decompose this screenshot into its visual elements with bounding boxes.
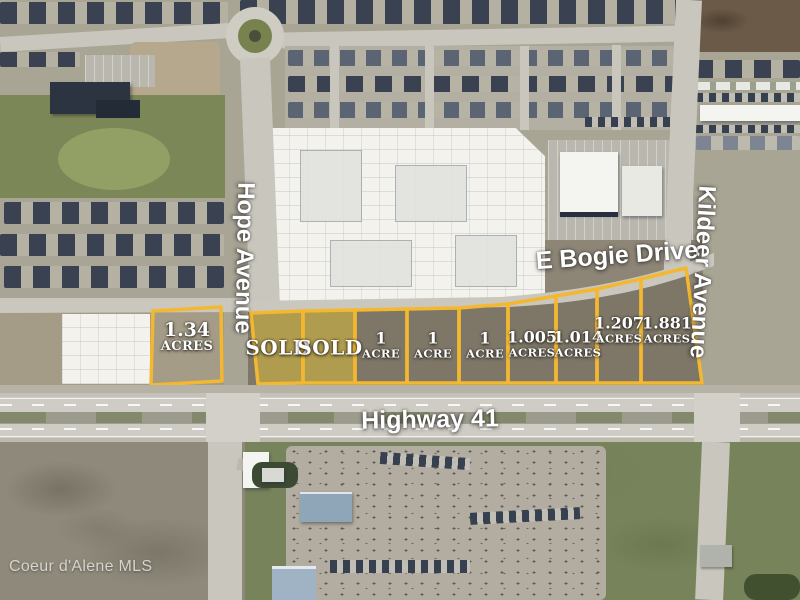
parcel-unit: ACRES [161, 340, 214, 354]
parcel-unit: ACRES [594, 332, 644, 344]
parcel-status: SOLD [297, 337, 362, 358]
hope-avenue-label: Hope Avenue [229, 182, 260, 334]
parcel-label-1acre-c: 1 ACRE [466, 330, 504, 359]
lane-line [0, 436, 800, 437]
parcel-acreage: 1.34 [161, 320, 214, 340]
trees [744, 574, 800, 600]
parcel-label-1-34: 1.34 ACRES [161, 320, 214, 354]
highway-intersection [206, 393, 260, 442]
blue-shed [300, 492, 352, 522]
parcel-unit: ACRE [414, 347, 452, 359]
parcel-unit: ACRES [553, 346, 603, 358]
highway-intersection [694, 393, 740, 442]
parcel-label-1-881: 1.881 ACRES [642, 315, 692, 344]
house-roof [262, 468, 284, 482]
aerial-parcel-map: Hope Avenue Kildeer Avenue E Bogie Drive… [0, 0, 800, 600]
parcel-label-1acre-b: 1 ACRE [414, 330, 452, 359]
farm-building [700, 545, 732, 567]
lane-line [0, 398, 800, 399]
highway-41-label: Highway 41 [361, 404, 499, 435]
parcel-acreage: 1 [362, 330, 400, 347]
parcel-label-sold-2: SOLD [297, 337, 362, 358]
parcel-unit: ACRE [466, 347, 504, 359]
mls-watermark: Coeur d'Alene MLS [9, 558, 152, 576]
parcel-label-1acre-a: 1 ACRE [362, 330, 400, 359]
parcel-acreage: 1.881 [642, 315, 692, 332]
blue-building [272, 566, 316, 600]
parcel-unit: ACRE [362, 347, 400, 359]
parcel-label-1-207: 1.207 ACRES [594, 315, 644, 344]
parcel-unit: ACRES [507, 346, 557, 358]
parcel-acreage: 1 [466, 330, 504, 347]
parcel-unit: ACRES [642, 332, 692, 344]
parcel-label-1-005: 1.005 ACRES [507, 329, 557, 358]
parcel-acreage: 1 [414, 330, 452, 347]
parcel-acreage: 1.005 [507, 329, 557, 346]
parked-trucks [330, 560, 470, 573]
parcel-acreage: 1.207 [594, 315, 644, 332]
equipment-yard [286, 446, 606, 600]
